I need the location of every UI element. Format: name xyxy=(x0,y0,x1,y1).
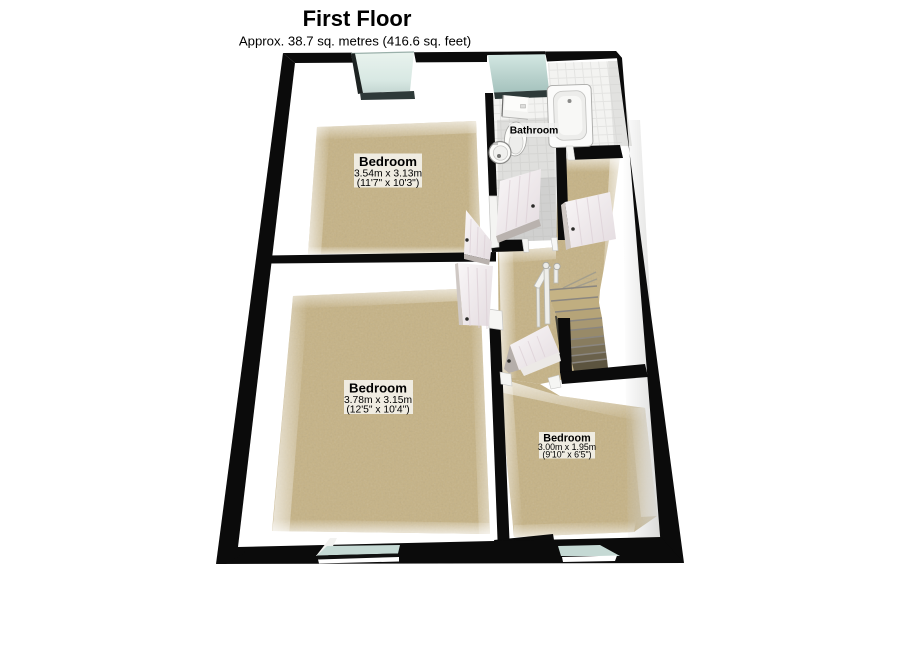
svg-text:First Floor: First Floor xyxy=(303,6,412,31)
svg-text:Bathroom: Bathroom xyxy=(510,126,559,137)
svg-text:(9'10" x 6'5"): (9'10" x 6'5") xyxy=(542,450,591,460)
svg-text:(12'5" x 10'4"): (12'5" x 10'4") xyxy=(346,405,409,416)
svg-text:(11'7" x 10'3"): (11'7" x 10'3") xyxy=(357,178,420,189)
svg-text:Approx. 38.7 sq. metres (416.6: Approx. 38.7 sq. metres (416.6 sq. feet) xyxy=(239,34,471,49)
svg-text:Bedroom: Bedroom xyxy=(349,381,407,396)
svg-text:Bedroom: Bedroom xyxy=(359,154,417,169)
